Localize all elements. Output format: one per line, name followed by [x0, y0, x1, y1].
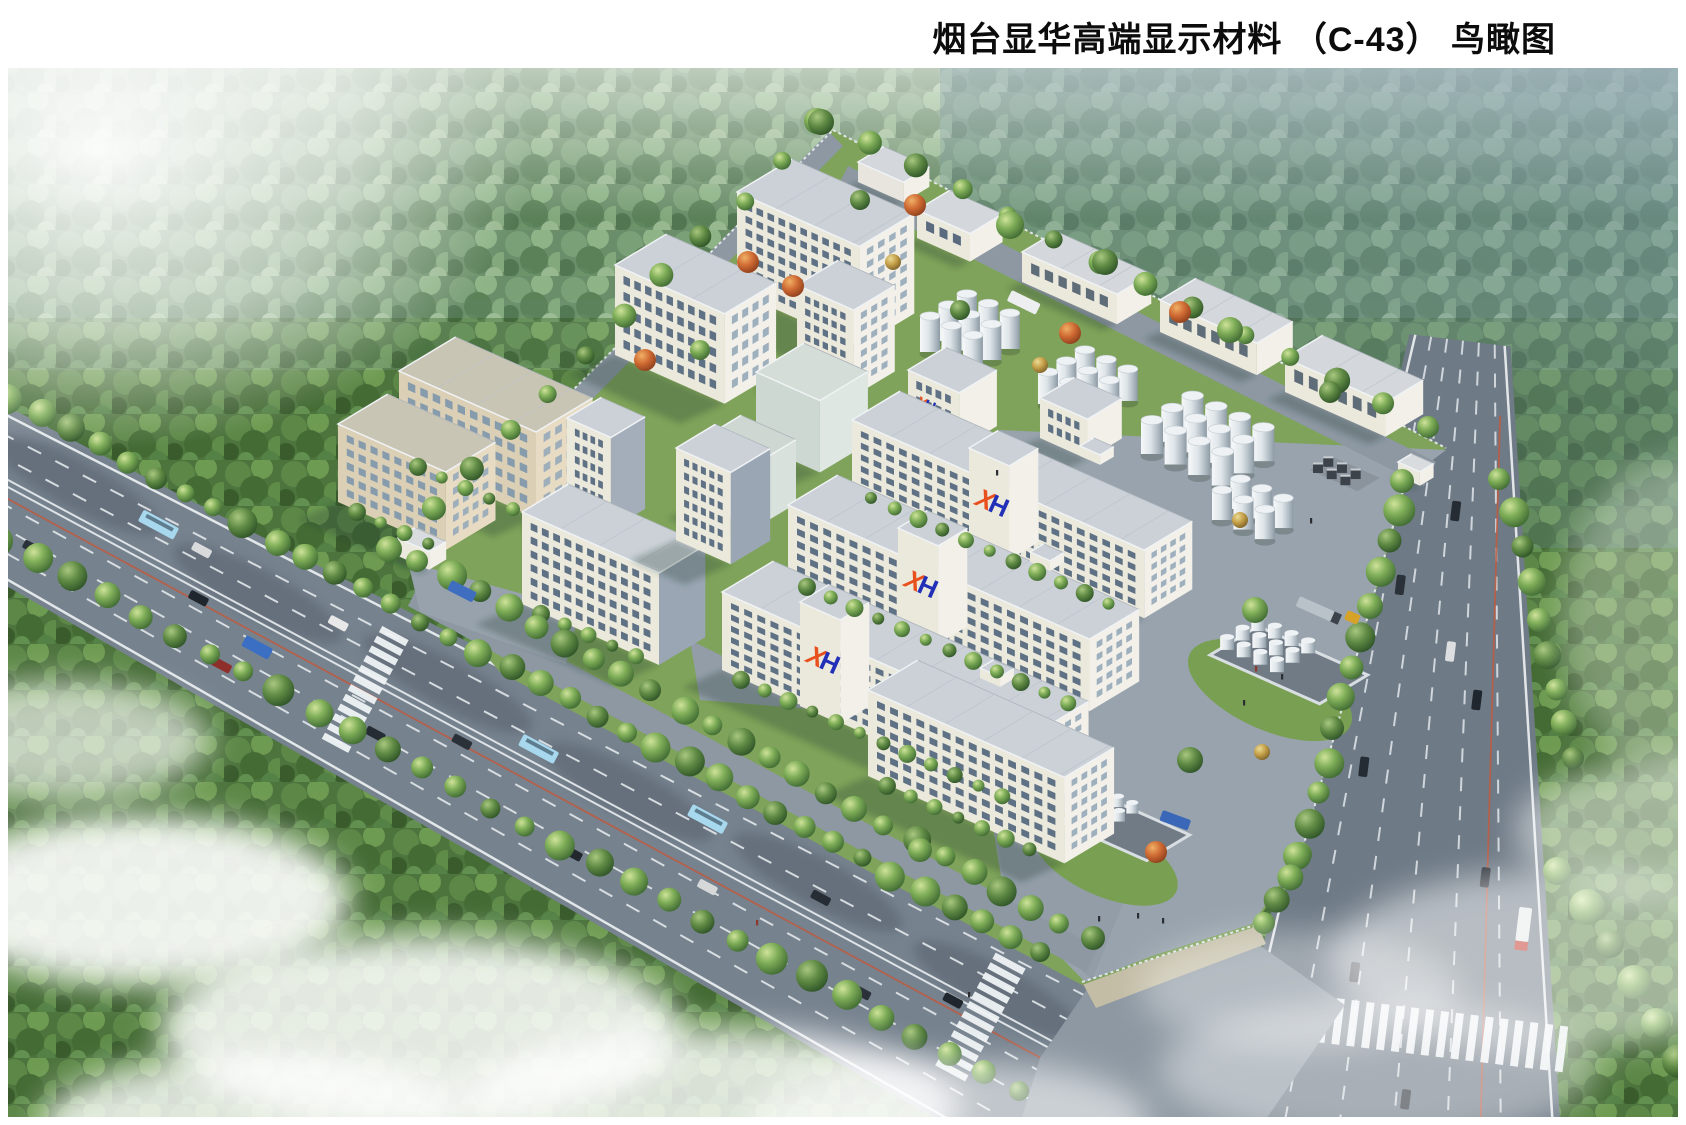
shrub	[888, 501, 902, 515]
shrub	[828, 714, 844, 730]
person	[756, 920, 758, 926]
tree	[996, 211, 1024, 239]
red-tree	[1169, 301, 1191, 323]
shrub	[798, 578, 816, 596]
shrub	[1038, 687, 1050, 699]
title-bar: 烟台显华高端显示材料 （C-43） 鸟瞰图	[0, 0, 1686, 66]
shrub	[854, 727, 866, 739]
red-tree	[737, 251, 759, 273]
page-title: 烟台显华高端显示材料 （C-43） 鸟瞰图	[932, 12, 1556, 61]
shrub	[375, 516, 387, 528]
shrub	[1054, 575, 1068, 589]
shrub	[580, 627, 596, 643]
shrub	[958, 532, 974, 548]
shrub	[409, 458, 427, 476]
person	[1098, 916, 1100, 922]
person	[1255, 666, 1257, 672]
shrub	[942, 643, 956, 657]
shrub	[779, 692, 797, 710]
tree	[1092, 249, 1118, 275]
shrub	[984, 545, 996, 557]
shrub	[758, 683, 772, 697]
shrub	[1060, 695, 1076, 711]
aerial-render-page: 烟台显华高端显示材料 （C-43） 鸟瞰图	[0, 0, 1686, 1125]
person	[1162, 918, 1164, 924]
person	[996, 470, 998, 476]
shrub	[904, 789, 918, 803]
shrub	[964, 652, 982, 670]
shrub	[952, 812, 964, 824]
shrub	[924, 757, 938, 771]
tree	[850, 190, 870, 210]
person	[1310, 518, 1312, 524]
shrub	[606, 640, 618, 652]
red-tree	[634, 349, 656, 371]
shrub	[898, 745, 916, 763]
shrub	[824, 590, 838, 604]
yellow-shrub	[1232, 512, 1248, 528]
shrub	[926, 799, 942, 815]
shrub	[994, 788, 1010, 804]
shrub	[990, 664, 1004, 678]
shrub	[396, 525, 412, 541]
yellow-shrub	[885, 254, 901, 270]
shrub	[878, 777, 896, 795]
shrub	[806, 706, 818, 718]
tree	[1319, 381, 1341, 403]
person	[1243, 700, 1245, 706]
yellow-shrub	[1032, 357, 1048, 373]
shrub	[1102, 598, 1114, 610]
tree	[690, 340, 710, 360]
red-tree	[904, 194, 926, 216]
tree	[908, 838, 932, 862]
shrub	[732, 671, 750, 689]
person	[1281, 674, 1283, 680]
shrub	[1005, 553, 1021, 569]
red-tree	[1059, 322, 1081, 344]
shrub	[845, 599, 863, 617]
shrub	[997, 830, 1015, 848]
tree	[950, 300, 970, 320]
shrub	[628, 648, 644, 664]
shrub	[909, 510, 927, 528]
tree	[1177, 747, 1203, 773]
shrub	[483, 493, 495, 505]
shrub	[947, 767, 963, 783]
tree	[1217, 317, 1243, 343]
shrub	[506, 502, 520, 516]
shrub	[1012, 673, 1030, 691]
shrub	[894, 621, 910, 637]
red-tree	[1145, 841, 1167, 863]
person	[968, 992, 970, 998]
shrub	[457, 480, 473, 496]
shrub	[558, 617, 572, 631]
red-tree	[782, 275, 804, 297]
shrub	[876, 736, 890, 750]
mist	[1140, 930, 1460, 1050]
shrub	[348, 503, 366, 521]
shrub	[1022, 842, 1036, 856]
shrub	[436, 471, 448, 483]
shrub	[422, 538, 434, 550]
shrub	[920, 634, 932, 646]
person	[1137, 913, 1139, 919]
shrub	[972, 780, 984, 792]
shrub	[872, 613, 884, 625]
shrub	[1028, 563, 1046, 581]
shrub	[1076, 584, 1094, 602]
yellow-shrub	[1254, 744, 1270, 760]
shrub	[935, 523, 949, 537]
shrub	[974, 820, 990, 836]
birdseye-scene: XHXHXHXH	[0, 0, 1686, 1125]
tree	[1242, 597, 1268, 623]
shrub	[865, 492, 877, 504]
